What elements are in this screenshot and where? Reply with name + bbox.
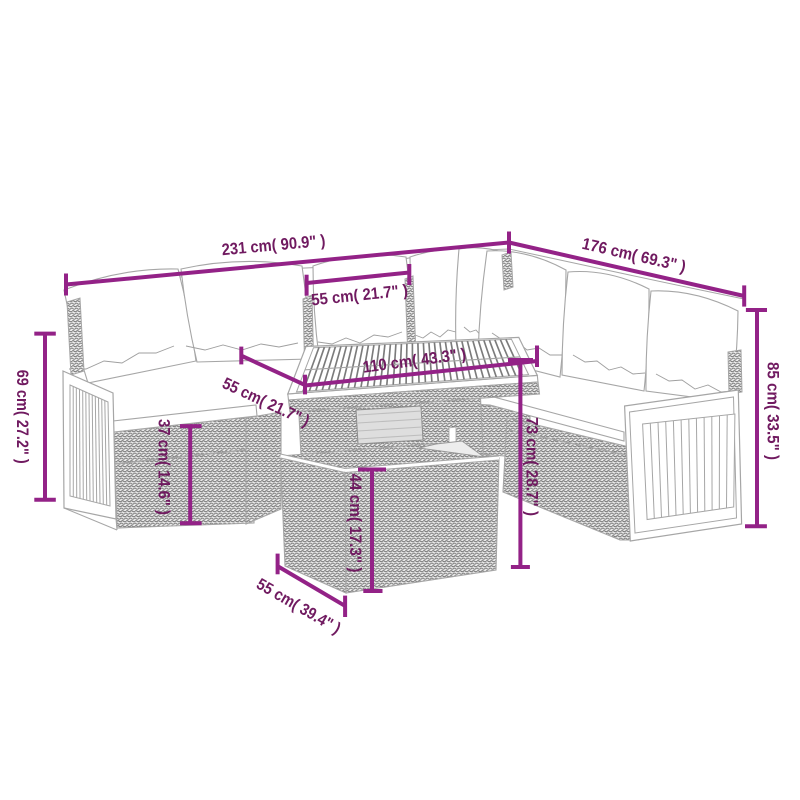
svg-text:69 cm( 27.2" ): 69 cm( 27.2" ) xyxy=(13,370,31,464)
svg-text:73 cm( 28.7" ): 73 cm( 28.7" ) xyxy=(523,417,541,516)
svg-text:37 cm( 14.6" ): 37 cm( 14.6" ) xyxy=(155,419,173,515)
svg-text:44 cm( 17.3" ): 44 cm( 17.3" ) xyxy=(346,474,364,573)
svg-text:85 cm( 33.5" ): 85 cm( 33.5" ) xyxy=(764,362,782,460)
